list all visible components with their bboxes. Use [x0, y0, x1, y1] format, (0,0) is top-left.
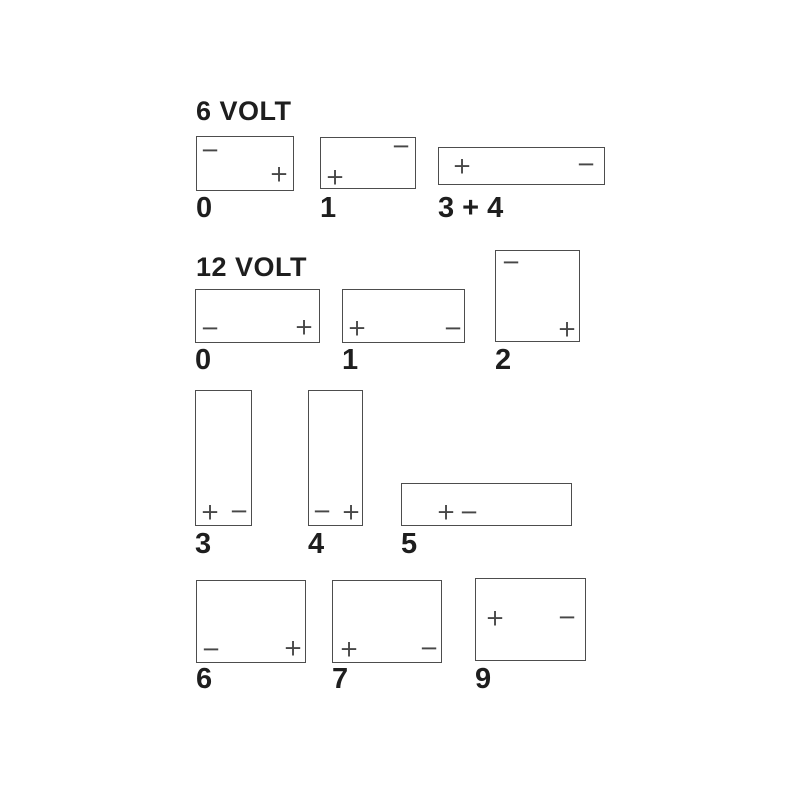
battery-layout-label-12-volt: 5 — [401, 529, 417, 559]
positive-terminal-icon: + — [339, 639, 358, 662]
negative-terminal-icon: − — [459, 502, 478, 525]
battery-layout-label-6-volt: 0 — [196, 193, 212, 223]
battery-layout-label-12-volt: 0 — [195, 345, 211, 375]
negative-terminal-icon: − — [576, 154, 595, 177]
battery-layout-label-12-volt: 4 — [308, 529, 324, 559]
battery-layout-label-12-volt: 1 — [342, 345, 358, 375]
positive-terminal-icon: + — [485, 608, 504, 631]
battery-outline-12-volt-layout-5: +− — [401, 483, 572, 526]
positive-terminal-icon: + — [452, 156, 471, 179]
battery-outline-6-volt-layout-0: −+ — [196, 136, 294, 191]
battery-layout-label-12-volt: 3 — [195, 529, 211, 559]
negative-terminal-icon: − — [201, 639, 220, 662]
negative-terminal-icon: − — [312, 501, 331, 524]
battery-outline-12-volt-layout-3: +− — [195, 390, 252, 526]
battery-terminal-layout-diagram: 6 VOLT 12 VOLT −+0+−1+−3 + 4−+0+−1−+2+−3… — [0, 0, 800, 800]
battery-layout-label-12-volt: 2 — [495, 345, 511, 375]
positive-terminal-icon: + — [283, 638, 302, 661]
positive-terminal-icon: + — [325, 167, 344, 190]
negative-terminal-icon: − — [419, 638, 438, 661]
battery-outline-12-volt-layout-0: −+ — [195, 289, 320, 343]
battery-outline-6-volt-layout-1: +− — [320, 137, 416, 189]
battery-outline-12-volt-layout-6: −+ — [196, 580, 306, 663]
battery-outline-12-volt-layout-4: −+ — [308, 390, 363, 526]
battery-layout-label-12-volt: 9 — [475, 664, 491, 694]
battery-outline-6-volt-layout-3+4: +− — [438, 147, 605, 185]
battery-layout-label-12-volt: 6 — [196, 664, 212, 694]
positive-terminal-icon: + — [269, 164, 288, 187]
battery-layout-label-12-volt: 7 — [332, 664, 348, 694]
negative-terminal-icon: − — [229, 501, 248, 524]
negative-terminal-icon: − — [391, 136, 410, 159]
battery-outline-12-volt-layout-1: +− — [342, 289, 465, 343]
positive-terminal-icon: + — [200, 502, 219, 525]
negative-terminal-icon: − — [501, 252, 520, 275]
negative-terminal-icon: − — [200, 318, 219, 341]
positive-terminal-icon: + — [557, 319, 576, 342]
section-title-12-volt: 12 VOLT — [196, 252, 307, 282]
battery-outline-12-volt-layout-7: +− — [332, 580, 442, 663]
battery-outline-12-volt-layout-9: +− — [475, 578, 586, 661]
positive-terminal-icon: + — [294, 317, 313, 340]
battery-layout-label-6-volt: 1 — [320, 193, 336, 223]
negative-terminal-icon: − — [557, 607, 576, 630]
battery-outline-12-volt-layout-2: −+ — [495, 250, 580, 342]
section-title-6-volt: 6 VOLT — [196, 96, 292, 126]
positive-terminal-icon: + — [341, 502, 360, 525]
negative-terminal-icon: − — [200, 140, 219, 163]
positive-terminal-icon: + — [436, 502, 455, 525]
positive-terminal-icon: + — [347, 318, 366, 341]
negative-terminal-icon: − — [443, 318, 462, 341]
battery-layout-label-6-volt: 3 + 4 — [438, 193, 503, 223]
